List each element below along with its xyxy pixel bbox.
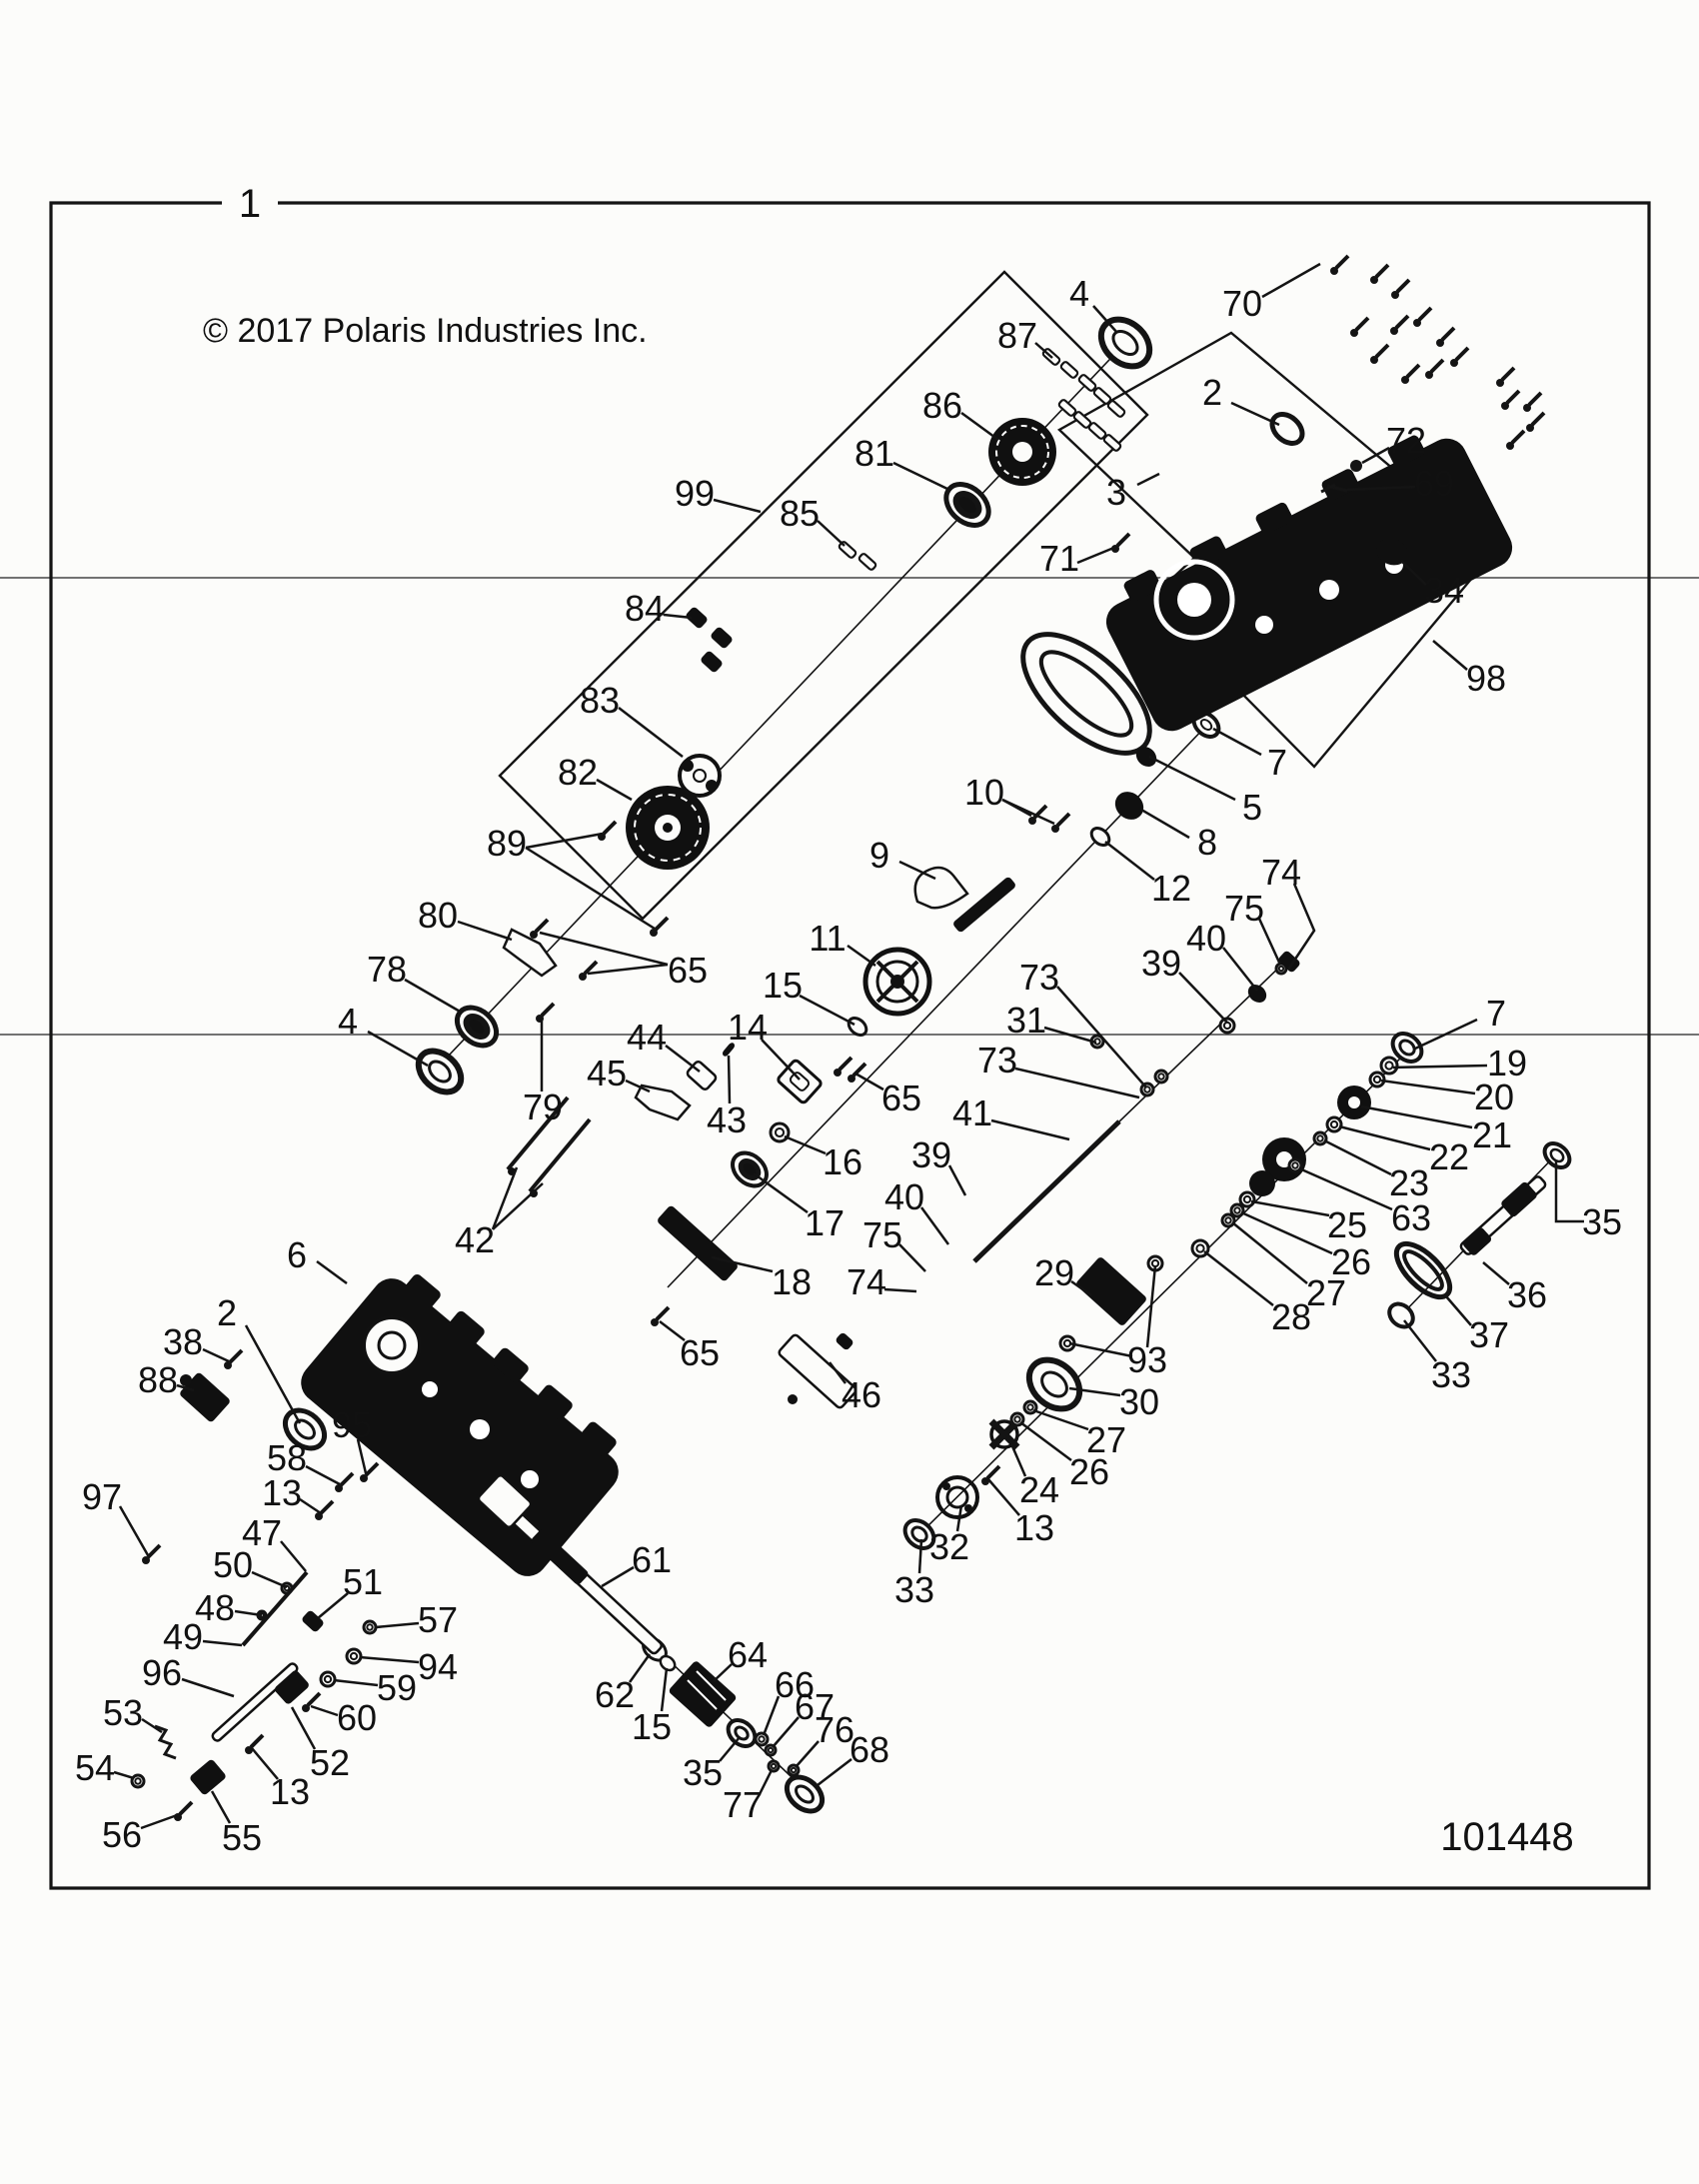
- callout-61-leader: [602, 1567, 634, 1586]
- callout-59-leader: [334, 1680, 378, 1685]
- part-bolt-164: [1529, 393, 1541, 405]
- part-circle-35: [1319, 580, 1339, 600]
- callout-89: 89: [487, 823, 527, 864]
- callout-74: 74: [847, 1261, 886, 1302]
- callout-70: 70: [1222, 283, 1262, 324]
- callout-15-leader: [662, 1668, 667, 1711]
- callout-2-leader: [1231, 403, 1279, 425]
- callout-96-leader: [182, 1679, 234, 1696]
- part-bolt-166: [1512, 431, 1524, 443]
- callout-69: 69: [1414, 463, 1454, 504]
- part-bolt-161-head: [1450, 359, 1458, 367]
- callout-37: 37: [1469, 1314, 1509, 1355]
- callout-77: 77: [723, 1784, 763, 1825]
- part-bolt-164-head: [1523, 404, 1531, 412]
- callout-89-leader: [526, 834, 603, 848]
- callout-65: 65: [680, 1332, 720, 1373]
- callout-31: 31: [1006, 1000, 1046, 1041]
- part-bolt-165: [1532, 413, 1544, 425]
- callout-15: 15: [763, 965, 803, 1006]
- callout-14: 14: [728, 1007, 768, 1048]
- part-bolt-177: [542, 1004, 554, 1016]
- part-bolt-166-head: [1506, 442, 1514, 450]
- callout-3: 3: [1106, 472, 1126, 513]
- callout-7-leader: [1213, 729, 1261, 755]
- callout-85: 85: [780, 493, 820, 534]
- callout-73-leader: [1015, 1069, 1139, 1097]
- part-key-137: [700, 650, 724, 674]
- callout-11-leader: [848, 946, 875, 966]
- callout-58: 58: [267, 1437, 307, 1478]
- callout-46: 46: [842, 1374, 881, 1415]
- callout-35: 35: [1582, 1201, 1622, 1242]
- callout-53: 53: [103, 1692, 143, 1733]
- diagram-number: 101448: [1440, 1815, 1573, 1859]
- callout-40-leader: [921, 1207, 948, 1244]
- callout-37-leader: [1446, 1296, 1471, 1325]
- part-circle-39: [364, 1317, 420, 1373]
- callout-3-leader: [1137, 474, 1159, 485]
- callout-75: 75: [1224, 888, 1264, 929]
- part-bolt-157: [1442, 328, 1454, 340]
- part-bolt-173-head: [315, 1512, 323, 1520]
- callout-13: 13: [262, 1472, 302, 1513]
- part-washer-89: [1240, 1192, 1254, 1206]
- copyright-text: © 2017 Polaris Industries Inc.: [203, 312, 648, 350]
- part-rrect-130: [189, 1758, 227, 1796]
- part-bolt-179-head: [834, 1069, 842, 1077]
- part-bolt-153: [1397, 280, 1409, 292]
- part-circle-70: [964, 1504, 972, 1512]
- callout-18: 18: [772, 1261, 812, 1302]
- callout-80: 80: [418, 895, 458, 936]
- part-bolt-151-head: [1330, 267, 1338, 275]
- part-ellr-4: [1266, 409, 1307, 450]
- part-circle-41: [470, 1419, 490, 1439]
- callout-13: 13: [1014, 1507, 1054, 1548]
- callout-20: 20: [1474, 1077, 1514, 1117]
- callout-72: 72: [1386, 420, 1426, 461]
- callout-23-leader: [1324, 1140, 1391, 1174]
- part-rrect-117: [656, 1204, 739, 1282]
- part-belt-31: [1388, 1235, 1459, 1306]
- part-circle-69: [942, 1482, 950, 1490]
- callout-50: 50: [213, 1544, 253, 1585]
- callout-58-leader: [306, 1466, 340, 1484]
- part-bolt-158-head: [1370, 356, 1378, 364]
- callout-93: 93: [1127, 1339, 1167, 1380]
- callout-2: 2: [217, 1292, 237, 1333]
- callout-84: 84: [625, 588, 665, 629]
- part-key-139: [301, 1609, 325, 1633]
- part-bolt-185: [180, 1802, 192, 1814]
- part-bolt-157-head: [1436, 339, 1444, 347]
- generated-diagram-layer: 2234456778910111213131314151516171819202…: [0, 203, 1699, 1888]
- part-circle-63: [1348, 1096, 1360, 1108]
- callout-75-leader: [899, 1244, 925, 1271]
- callout-49: 49: [163, 1616, 203, 1657]
- callout-2-leader: [246, 1325, 300, 1423]
- callout-78-leader: [405, 980, 462, 1013]
- callout-78: 78: [367, 949, 407, 990]
- part-bolt-169: [604, 822, 616, 834]
- part-rrect-118: [505, 1505, 664, 1654]
- callout-71-leader: [1077, 547, 1116, 563]
- part-bolt-155-head: [1390, 327, 1398, 335]
- part-belt-31-inner: [1399, 1246, 1447, 1294]
- part-bolt-175-head: [981, 1477, 989, 1485]
- part-circle-66: [1249, 1170, 1275, 1196]
- part-bolt-154: [1356, 318, 1368, 330]
- callout-8: 8: [1197, 822, 1217, 863]
- callout-98-leader: [1433, 641, 1467, 670]
- part-bolt-162-head: [1496, 379, 1504, 387]
- callout-12: 12: [1151, 868, 1191, 909]
- callout-79: 79: [523, 1087, 563, 1127]
- part-bolt-174-head: [245, 1746, 253, 1754]
- part-rod-113: [974, 1121, 1119, 1261]
- callout-39: 39: [911, 1134, 951, 1175]
- callout-49-leader: [203, 1641, 242, 1645]
- callout-96: 96: [142, 1652, 182, 1693]
- callout-54-leader: [114, 1772, 134, 1778]
- callout-36-leader: [1483, 1262, 1509, 1284]
- assembly-number-label: 1: [239, 182, 261, 226]
- part-bolt-159: [1407, 365, 1419, 377]
- callout-57-leader: [376, 1623, 419, 1627]
- part-bolt-171-head: [360, 1474, 368, 1482]
- callout-41-leader: [991, 1120, 1069, 1139]
- callout-10-leader-2: [1002, 800, 1054, 824]
- part-washer-91: [1222, 1214, 1234, 1226]
- part-circle-34: [1177, 583, 1211, 617]
- callout-26-leader: [1020, 1422, 1071, 1460]
- callout-63: 63: [1391, 1197, 1431, 1238]
- part-circle-42: [521, 1470, 539, 1488]
- part-circle-43: [422, 1381, 438, 1397]
- callout-17: 17: [805, 1202, 845, 1243]
- callout-34: 34: [1424, 570, 1464, 611]
- callout-93-leader: [1147, 1265, 1155, 1347]
- callout-28: 28: [1271, 1296, 1311, 1337]
- part-bolt-179: [840, 1058, 851, 1070]
- callout-82: 82: [558, 752, 598, 793]
- part-washer-90: [1231, 1204, 1243, 1216]
- callout-33: 33: [1431, 1354, 1471, 1395]
- callout-16-leader: [785, 1136, 826, 1153]
- callout-7: 7: [1486, 993, 1506, 1034]
- callout-40: 40: [1186, 918, 1226, 959]
- part-bolt-161: [1456, 348, 1468, 360]
- callout-22: 22: [1429, 1136, 1469, 1177]
- callout-52: 52: [310, 1742, 350, 1783]
- part-circle-53: [706, 780, 718, 792]
- callout-6-leader: [317, 1261, 347, 1283]
- callout-44: 44: [627, 1017, 667, 1058]
- callout-43: 43: [707, 1099, 747, 1140]
- callout-73: 73: [1019, 957, 1059, 998]
- callout-64: 64: [728, 1634, 768, 1675]
- callout-65-leader: [588, 965, 668, 974]
- part-bolt-182: [230, 1350, 242, 1362]
- callout-51: 51: [343, 1561, 383, 1602]
- part-path-192: [636, 1086, 690, 1119]
- part-bolt-160: [1431, 360, 1443, 372]
- callout-99-leader: [714, 500, 761, 512]
- callout-39-leader: [949, 1165, 965, 1195]
- part-washer-100: [1220, 1019, 1234, 1033]
- callout-59: 59: [377, 1667, 417, 1708]
- callout-74: 74: [1261, 852, 1301, 893]
- callout-32: 32: [929, 1526, 969, 1567]
- part-path-191: [504, 930, 556, 976]
- callout-97-leader: [120, 1506, 148, 1555]
- part-bolt-175: [987, 1466, 999, 1478]
- callout-25: 25: [1327, 1204, 1367, 1245]
- callout-86-leader: [961, 413, 998, 440]
- callout-42-leader: [493, 1167, 517, 1229]
- callout-60-leader: [311, 1706, 338, 1715]
- part-bolt-162: [1502, 368, 1514, 380]
- part-rrect-126: [835, 1331, 854, 1351]
- part-bolt-180: [853, 1064, 865, 1076]
- callout-9: 9: [869, 835, 889, 876]
- part-wkey-146: [1107, 400, 1126, 418]
- callout-21: 21: [1472, 1114, 1512, 1155]
- callout-16: 16: [823, 1141, 862, 1182]
- callout-38: 38: [163, 1321, 203, 1362]
- callout-24: 24: [1019, 1469, 1059, 1510]
- callout-15: 15: [632, 1706, 672, 1747]
- callout-68-leader: [818, 1759, 851, 1785]
- callout-44-leader: [666, 1046, 700, 1072]
- part-bolt-170: [656, 918, 668, 930]
- part-bolt-186: [308, 1693, 320, 1705]
- part-bolt-163-head: [1501, 402, 1509, 410]
- callout-4: 4: [1069, 273, 1089, 314]
- callout-94-leader: [360, 1657, 419, 1662]
- part-washer-103: [756, 1733, 768, 1745]
- callout-75: 75: [862, 1214, 902, 1255]
- callout-94: 94: [418, 1646, 458, 1687]
- part-bolt-163: [1507, 391, 1519, 403]
- callout-39: 39: [1141, 943, 1181, 984]
- callout-74-leader: [884, 1289, 916, 1291]
- callout-45: 45: [587, 1053, 627, 1093]
- callout-5: 5: [1242, 787, 1262, 828]
- callout-15-leader: [800, 996, 854, 1025]
- part-circle-50: [1012, 442, 1032, 462]
- callout-26-leader: [1241, 1212, 1332, 1253]
- callout-56: 56: [102, 1814, 142, 1855]
- callout-99: 99: [675, 473, 715, 514]
- callout-47-leader: [281, 1541, 306, 1571]
- callout-40: 40: [884, 1176, 924, 1217]
- callout-87: 87: [997, 315, 1037, 356]
- part-washer-99: [1155, 1071, 1167, 1083]
- callout-12-leader: [1105, 842, 1154, 880]
- part-wkey-150: [1103, 434, 1122, 452]
- part-wkey-147: [1058, 399, 1077, 417]
- part-bolt-153-head: [1391, 291, 1399, 299]
- callout-65: 65: [668, 950, 708, 991]
- part-bolt-173: [321, 1501, 333, 1513]
- callout-27-leader: [1033, 1410, 1088, 1429]
- callout-13: 13: [270, 1771, 310, 1812]
- callout-27: 27: [1086, 1419, 1126, 1460]
- callout-70-leader: [1262, 264, 1320, 297]
- part-bolt-168-head: [579, 973, 587, 981]
- part-circle-52: [682, 760, 694, 772]
- part-bolt-174: [251, 1735, 263, 1747]
- part-bolt-155: [1396, 316, 1408, 328]
- callout-36: 36: [1507, 1274, 1547, 1315]
- part-bolt-158: [1376, 345, 1388, 357]
- callout-38-leader: [203, 1349, 229, 1361]
- callout-27: 27: [1306, 1272, 1346, 1313]
- callout-10: 10: [964, 772, 1004, 813]
- part-bolt-152-head: [1370, 276, 1378, 284]
- callout-83: 83: [580, 680, 620, 721]
- callout-21-leader: [1361, 1106, 1472, 1127]
- callout-2: 2: [1202, 372, 1222, 413]
- callout-56-leader: [141, 1814, 180, 1828]
- part-wkey-141: [858, 553, 877, 571]
- part-bolt-167: [536, 920, 548, 932]
- part-wkey-143: [1060, 361, 1079, 379]
- part-bolt-176: [148, 1545, 160, 1557]
- part-washer-86: [1327, 1117, 1341, 1131]
- callout-57: 57: [418, 1599, 458, 1640]
- callout-82-leader: [597, 780, 632, 800]
- callout-4: 4: [338, 1001, 358, 1042]
- part-bolt-160-head: [1425, 371, 1433, 379]
- part-bolt-151: [1336, 256, 1348, 268]
- part-bolt-156-head: [1413, 319, 1421, 327]
- part-bolt-152: [1376, 265, 1388, 277]
- callout-11: 11: [809, 918, 846, 959]
- callout-95: 95: [332, 1404, 372, 1445]
- part-dot-187: [1350, 460, 1362, 472]
- callout-43-leader: [729, 1056, 730, 1103]
- callout-62: 62: [595, 1674, 635, 1715]
- part-circle-127: [788, 1394, 798, 1404]
- part-bolt-172-head: [335, 1484, 343, 1492]
- callout-19-leader: [1393, 1066, 1487, 1068]
- callout-25-leader: [1251, 1201, 1329, 1215]
- callout-83-leader: [619, 708, 683, 757]
- callout-81-leader: [893, 463, 949, 490]
- callout-6: 6: [287, 1234, 307, 1275]
- part-washer-107: [321, 1672, 335, 1686]
- part-washer-110: [364, 1621, 376, 1633]
- part-bolt-184: [1057, 814, 1069, 826]
- callout-27-leader: [1232, 1222, 1307, 1283]
- callout-53-leader: [142, 1719, 162, 1732]
- callout-13-leader: [300, 1499, 321, 1513]
- callout-55: 55: [222, 1817, 262, 1858]
- callout-17-leader: [754, 1173, 808, 1212]
- part-bolt-176-head: [142, 1556, 150, 1564]
- part-bolt-172: [341, 1473, 353, 1485]
- callout-63-leader: [1299, 1168, 1392, 1209]
- callout-80-leader: [458, 922, 512, 940]
- part-bolt-184-head: [1051, 825, 1059, 833]
- part-bolt-165-head: [1526, 424, 1534, 432]
- callout-7: 7: [1267, 742, 1287, 783]
- callout-88: 88: [138, 1359, 178, 1400]
- part-bolt-181: [657, 1307, 669, 1319]
- callout-41: 41: [952, 1092, 992, 1133]
- part-bolt-182-head: [224, 1361, 232, 1369]
- part-washer-108: [347, 1649, 361, 1663]
- part-circle-37: [1255, 616, 1273, 634]
- part-bolt-170-head: [650, 929, 658, 937]
- part-washer-105: [769, 1761, 779, 1771]
- part-bolt-156: [1419, 308, 1431, 320]
- callout-4-leader: [368, 1032, 428, 1066]
- callout-28-leader: [1204, 1251, 1273, 1305]
- callout-29: 29: [1034, 1252, 1074, 1293]
- callout-8-leader: [1141, 810, 1189, 838]
- part-bolt-159-head: [1401, 376, 1409, 384]
- callout-81: 81: [854, 433, 894, 474]
- callout-76: 76: [815, 1709, 854, 1750]
- callout-22-leader: [1339, 1126, 1430, 1149]
- callout-39-leader: [1179, 973, 1227, 1023]
- callout-85-leader: [818, 521, 845, 546]
- part-circle-47: [663, 823, 673, 833]
- callout-61: 61: [632, 1539, 672, 1580]
- callout-68: 68: [849, 1729, 889, 1770]
- callout-5-leader: [1149, 757, 1235, 800]
- callout-35-leader: [1556, 1161, 1584, 1221]
- part-circle-83: [180, 1374, 192, 1386]
- part-bolt-186-head: [302, 1704, 310, 1712]
- parts-diagram-page: 2234456778910111213131314151516171819202…: [0, 0, 1699, 2184]
- callout-73-leader: [1057, 987, 1146, 1088]
- callout-50-leader: [252, 1572, 287, 1587]
- part-key-136: [710, 626, 734, 650]
- callout-97: 97: [82, 1476, 122, 1517]
- part-washer-97: [771, 1123, 789, 1141]
- part-bolt-183-head: [1028, 817, 1036, 825]
- callout-54: 54: [75, 1747, 115, 1788]
- part-wkey-149: [1088, 422, 1107, 440]
- callout-42-leader-2: [493, 1183, 543, 1229]
- callout-65: 65: [881, 1078, 921, 1118]
- part-blob-77: [1244, 981, 1270, 1006]
- callout-33: 33: [894, 1569, 934, 1610]
- exploded-diagram-svg: 2234456778910111213131314151516171819202…: [0, 0, 1699, 2184]
- part-bolt-181-head: [651, 1318, 659, 1326]
- part-bolt-154-head: [1350, 329, 1358, 337]
- callout-86: 86: [922, 385, 962, 426]
- callout-98: 98: [1466, 658, 1506, 699]
- callout-30: 30: [1119, 1381, 1159, 1422]
- callout-73: 73: [977, 1040, 1017, 1081]
- callout-40-leader: [1223, 948, 1257, 991]
- part-circle-59: [890, 975, 904, 989]
- part-bolt-167-head: [530, 931, 538, 939]
- callout-71: 71: [1039, 538, 1079, 579]
- callout-42: 42: [455, 1219, 495, 1260]
- part-bolt-178: [1117, 534, 1129, 546]
- callout-35: 35: [683, 1752, 723, 1793]
- part-washer-87: [1314, 1132, 1326, 1144]
- callout-65-leader-2: [540, 933, 668, 965]
- part-bolt-180-head: [848, 1075, 855, 1083]
